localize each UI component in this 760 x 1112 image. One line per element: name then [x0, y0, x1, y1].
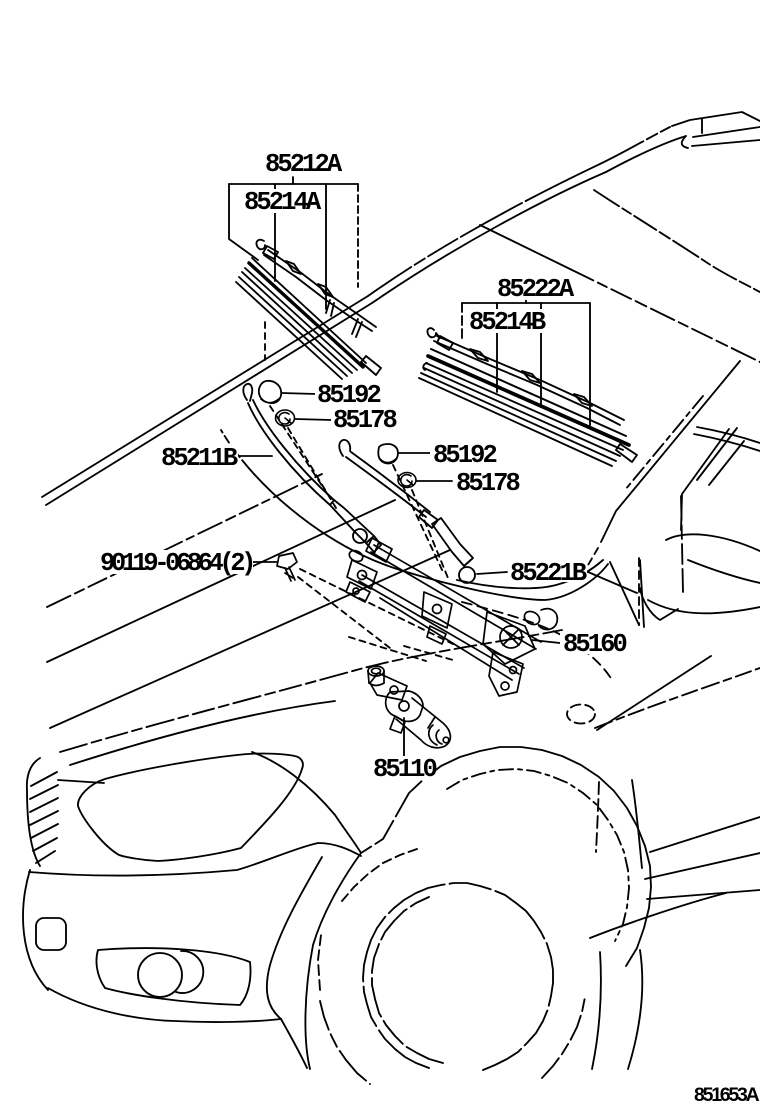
svg-text:85178: 85178: [333, 406, 396, 435]
svg-text:85214B: 85214B: [469, 308, 546, 337]
svg-text:85212A: 85212A: [265, 150, 343, 179]
svg-text:85214A: 85214A: [244, 188, 322, 217]
svg-text:851653A: 851653A: [694, 1084, 760, 1106]
svg-text:85211B: 85211B: [161, 444, 238, 473]
svg-text:85222A: 85222A: [497, 275, 575, 304]
svg-text:85178: 85178: [456, 469, 519, 498]
svg-text:90119-06864(2): 90119-06864(2): [100, 549, 253, 578]
svg-text:85160: 85160: [563, 630, 626, 659]
svg-text:85221B: 85221B: [510, 559, 587, 588]
svg-text:85110: 85110: [373, 755, 436, 784]
svg-text:85192: 85192: [433, 441, 496, 470]
